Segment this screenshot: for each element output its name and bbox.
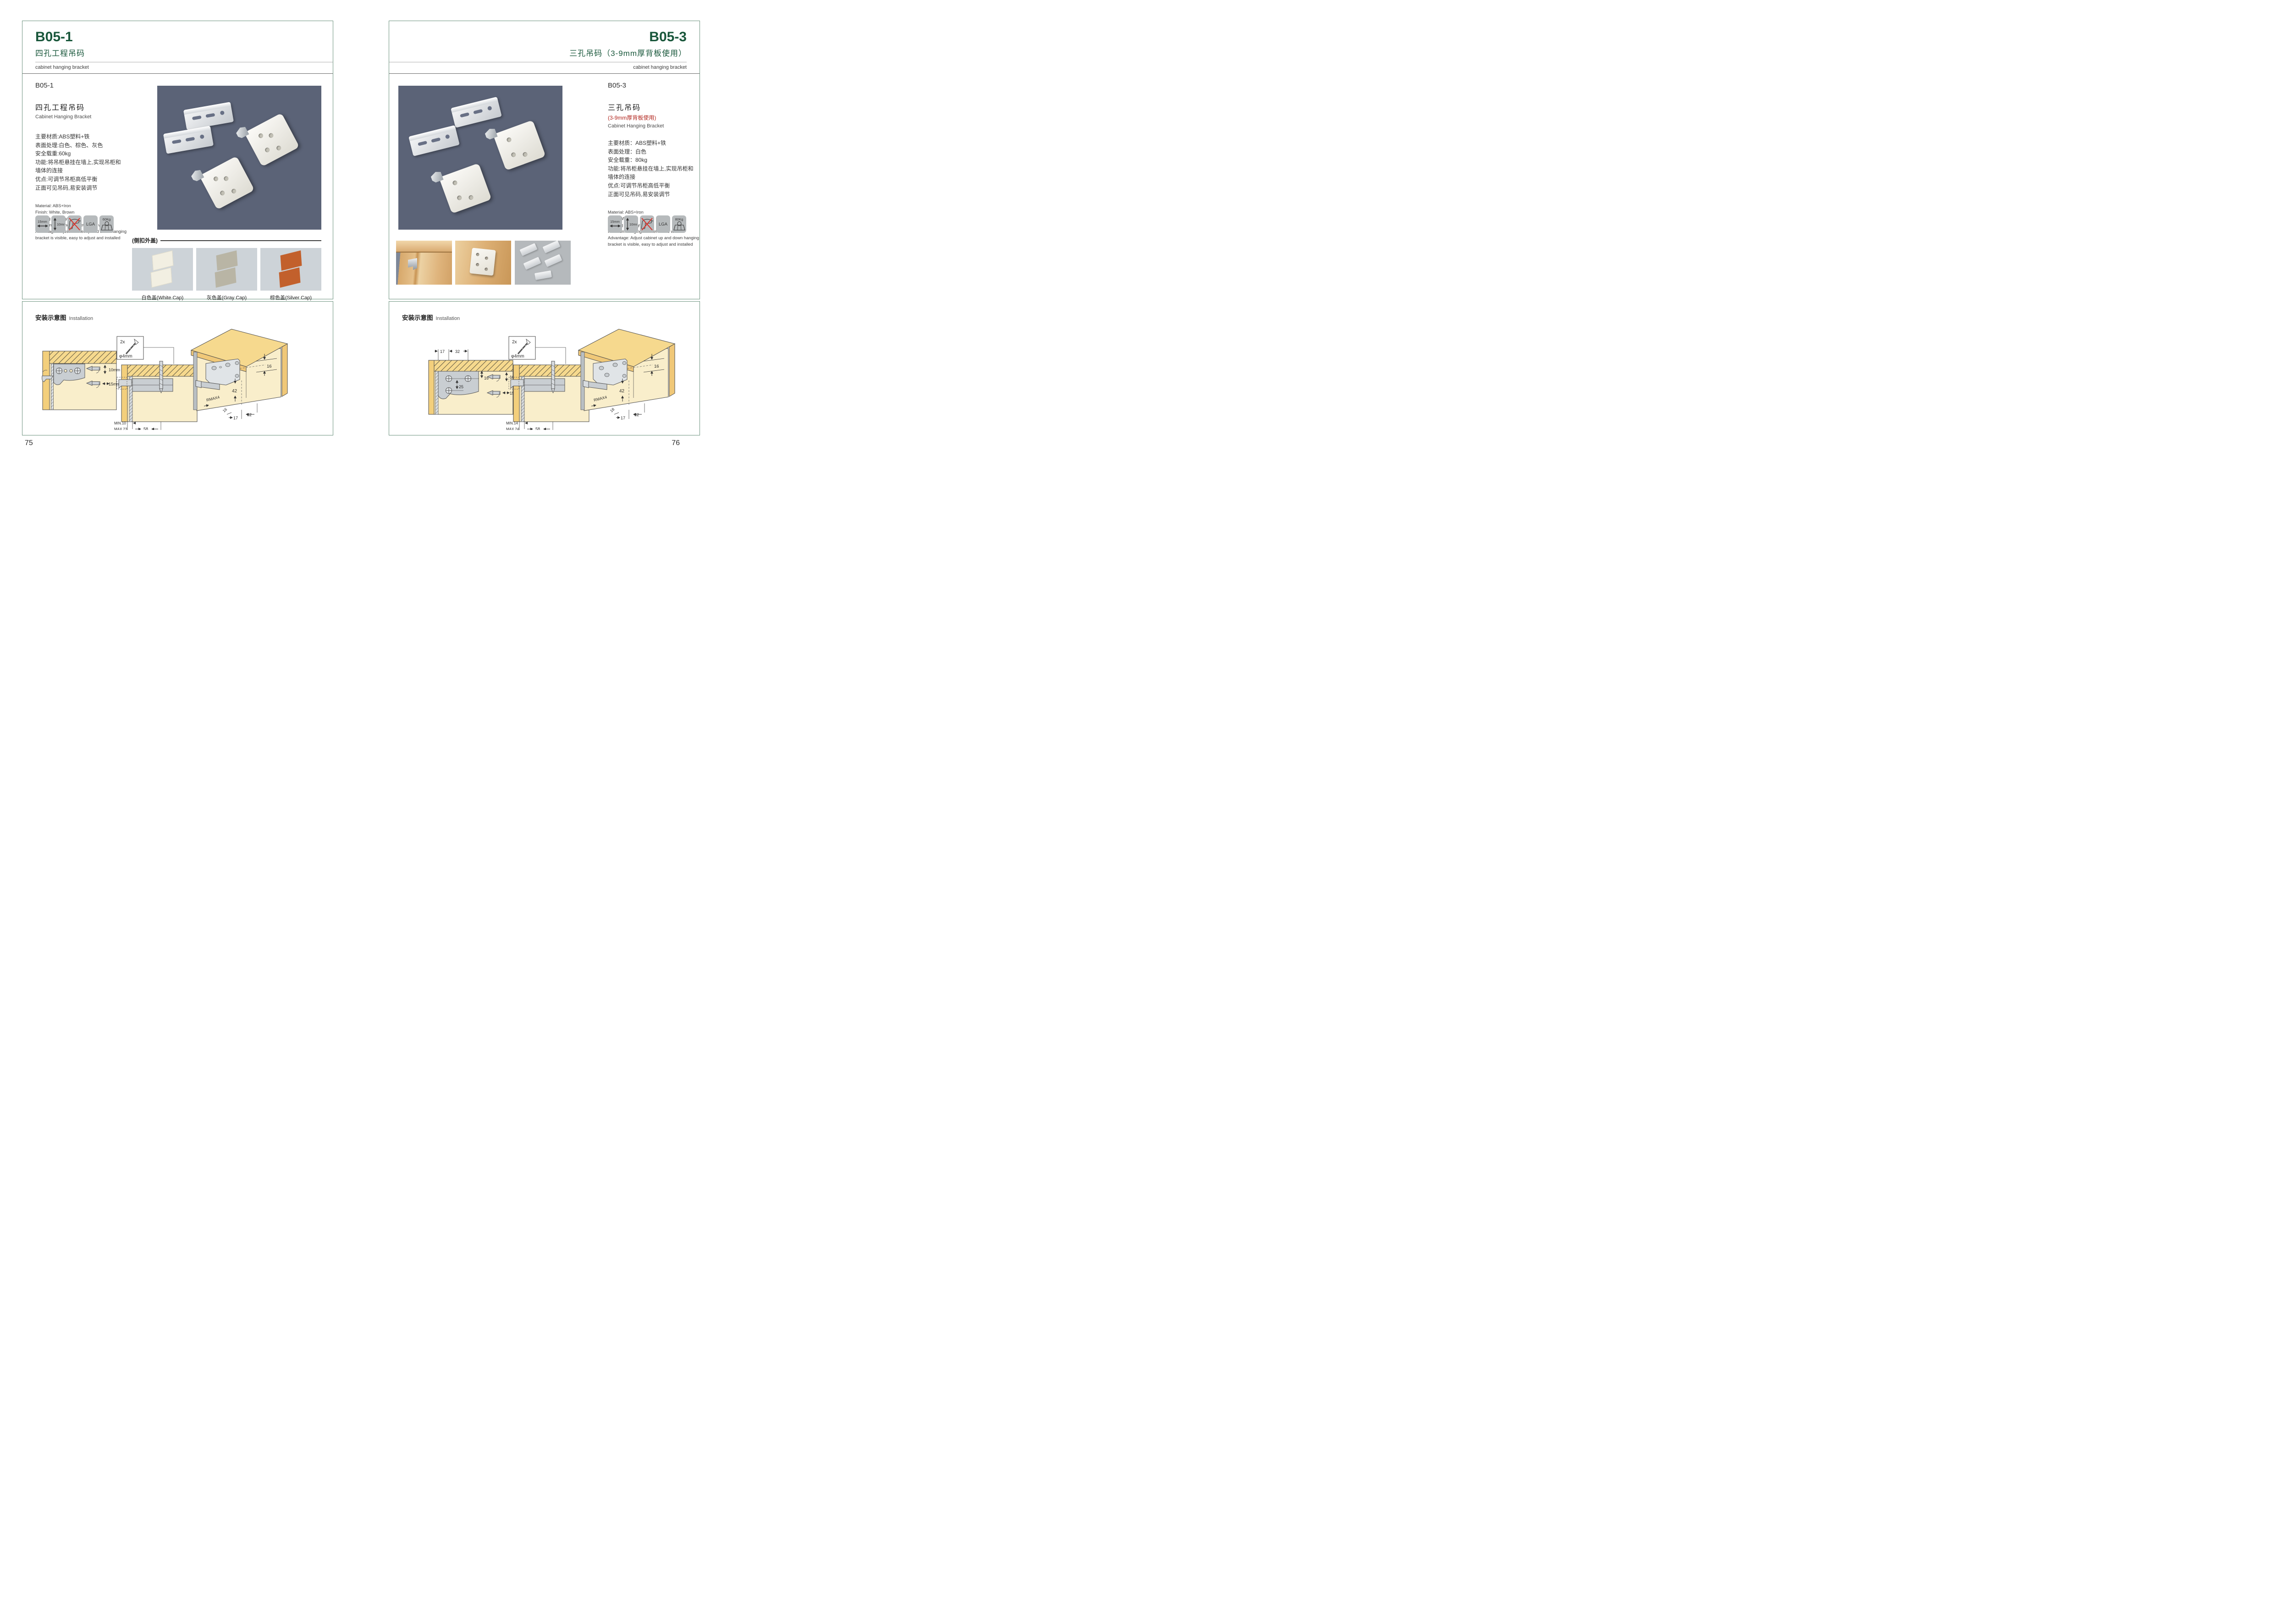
cap-gray: 灰色盖(Gray Cap) bbox=[196, 248, 257, 301]
screw-count: 2x bbox=[512, 340, 517, 345]
header-divider bbox=[22, 73, 333, 74]
dim-label: MIN.14 bbox=[506, 421, 518, 425]
photo-hook-detail bbox=[396, 241, 452, 285]
no-drill-icon bbox=[640, 215, 654, 233]
cap-white: 白色盖(White Cap) bbox=[132, 248, 193, 301]
product-name-cn: 四孔工程吊码 bbox=[35, 101, 150, 112]
dim-label: 42 bbox=[619, 389, 625, 394]
header-divider bbox=[389, 73, 700, 74]
height-10mm-icon: 10mm bbox=[51, 215, 66, 233]
width-15mm-icon: 15mm bbox=[35, 215, 50, 233]
dim-label: 17 bbox=[621, 416, 625, 420]
page-subtitle-cn: 三孔吊码（3-9mm厚背板使用） bbox=[389, 47, 687, 58]
metal-plate bbox=[163, 126, 214, 154]
page-number: 76 bbox=[672, 439, 680, 447]
screw-diameter: φ4mm bbox=[119, 354, 132, 359]
screw-diameter: φ4mm bbox=[511, 354, 524, 359]
feature-icons: 15mm 10mm LGA 60Kg bbox=[35, 215, 114, 233]
metal-plate bbox=[408, 125, 460, 156]
dim-label: 58 bbox=[143, 427, 148, 430]
dim-label: 25 bbox=[459, 385, 463, 389]
dim-label: MIN.10 bbox=[114, 421, 126, 425]
product-code: B05-1 bbox=[35, 82, 150, 89]
cap-silver: 棕色盖(Silver Cap) bbox=[260, 248, 321, 301]
load-60kg-icon: 60Kg bbox=[99, 215, 114, 233]
header-rule bbox=[389, 62, 687, 62]
bracket-block bbox=[244, 113, 300, 166]
feature-icons: 15mm 10mm LGA 80Kg bbox=[608, 215, 686, 233]
svg-text:10mm: 10mm bbox=[629, 222, 637, 226]
specs-cn: 主要材质:ABS塑料+铁 表面处理:白色、棕色、灰色 安全载重:60kg 功能:… bbox=[35, 132, 150, 192]
lga-icon: LGA bbox=[83, 215, 98, 233]
dim-label: 17 bbox=[440, 349, 445, 354]
bracket-block bbox=[493, 120, 545, 171]
installation-title-en: Installation bbox=[69, 316, 94, 321]
page-b05-1: B05-1 四孔工程吊码 cabinet hanging bracket B05… bbox=[22, 0, 332, 460]
product-photo bbox=[157, 86, 321, 230]
bracket-block bbox=[199, 156, 255, 209]
width-15mm-icon: 15mm bbox=[608, 215, 622, 233]
no-drill-icon bbox=[67, 215, 82, 233]
dim-label: 32 bbox=[455, 349, 460, 354]
page-number: 75 bbox=[25, 439, 33, 447]
dim-label: 18 bbox=[609, 407, 616, 413]
installation-section: 安装示意图Installation 17 32 bbox=[389, 301, 700, 435]
dim-label: 17 bbox=[233, 416, 238, 420]
product-name-en: Cabinet Hanging Bracket bbox=[35, 114, 150, 120]
page-title: B05-3 bbox=[389, 30, 687, 44]
dim-label: 16 bbox=[267, 364, 272, 369]
height-10mm-icon: 10mm bbox=[624, 215, 638, 233]
page-title: B05-1 bbox=[35, 30, 333, 44]
installation-diagram-section: 10mm 15mm bbox=[41, 346, 126, 414]
page-b05-3: B05-3 三孔吊码（3-9mm厚背板使用） cabinet hanging b… bbox=[389, 0, 699, 460]
bracket-block bbox=[439, 163, 491, 214]
dim-label: MAX.23 bbox=[114, 427, 127, 430]
page-header: B05-3 三孔吊码（3-9mm厚背板使用） cabinet hanging b… bbox=[389, 21, 700, 73]
metal-plate bbox=[451, 97, 502, 128]
installation-section: 安装示意图Installation bbox=[22, 301, 333, 435]
installation-title-en: Installation bbox=[436, 316, 460, 321]
product-code: B05-3 bbox=[608, 82, 695, 89]
dim-label: 42 bbox=[232, 389, 237, 394]
page-subtitle-cn: 四孔工程吊码 bbox=[35, 47, 333, 58]
caps-section: (侧扣外盖) 白色盖(White Cap) 灰色盖(Gray Cap) 棕色盖(… bbox=[132, 237, 321, 301]
lga-icon: LGA bbox=[656, 215, 670, 233]
page-header: B05-1 四孔工程吊码 cabinet hanging bracket bbox=[22, 21, 333, 73]
product-name-note: (3-9mm厚背板使用) bbox=[608, 114, 695, 121]
dim-label: 16 bbox=[222, 407, 228, 413]
product-section-b05-3: B05-3 三孔吊码（3-9mm厚背板使用） cabinet hanging b… bbox=[389, 21, 700, 299]
page-subtitle-en: cabinet hanging bracket bbox=[35, 65, 333, 70]
dim-label: 58 bbox=[535, 427, 540, 430]
screw-count: 2x bbox=[120, 340, 125, 345]
caps-label: (侧扣外盖) bbox=[132, 237, 158, 244]
photo-plates-set bbox=[515, 241, 571, 285]
caps-rule bbox=[160, 240, 321, 241]
product-name-en: Cabinet Hanging Bracket bbox=[608, 123, 695, 129]
product-name-cn: 三孔吊码 bbox=[608, 101, 695, 112]
header-rule bbox=[35, 62, 333, 62]
installation-title-cn: 安装示意图 bbox=[35, 314, 66, 321]
photo-bracket-mounted bbox=[455, 241, 511, 285]
specs-cn: 主要材质：ABS塑料+铁 表面处理：白色 安全载重：80kg 功能:将吊柜悬挂在… bbox=[608, 139, 695, 198]
installation-diagram-3d: 16 42 RMAX4 16 17 32 bbox=[187, 325, 291, 424]
page-subtitle-en: cabinet hanging bracket bbox=[389, 65, 687, 70]
dim-label: 32 bbox=[634, 413, 639, 417]
catalog-spread: B05-1 四孔工程吊码 cabinet hanging bracket B05… bbox=[0, 0, 706, 460]
product-photo bbox=[398, 86, 562, 230]
svg-text:10mm: 10mm bbox=[57, 222, 65, 226]
dim-label: 32 bbox=[247, 413, 252, 417]
installation-title-cn: 安装示意图 bbox=[402, 314, 433, 321]
installation-diagram-3d: 16 42 RMAX4 18 17 32 bbox=[575, 325, 678, 424]
load-80kg-icon: 80Kg bbox=[672, 215, 686, 233]
product-section-b05-1: B05-1 四孔工程吊码 cabinet hanging bracket B05… bbox=[22, 21, 333, 299]
dim-label: 16 bbox=[654, 364, 659, 369]
dim-label: MAX.24 bbox=[506, 427, 519, 430]
